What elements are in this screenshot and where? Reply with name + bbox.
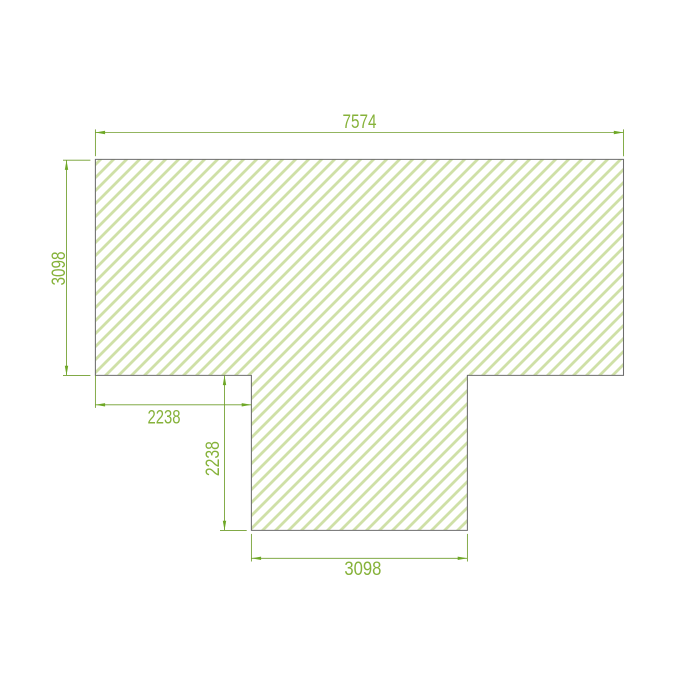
svg-text:2238: 2238: [202, 441, 224, 476]
svg-text:7574: 7574: [343, 111, 377, 133]
svg-text:3098: 3098: [48, 252, 70, 286]
svg-text:3098: 3098: [344, 558, 381, 580]
svg-text:2238: 2238: [148, 407, 181, 429]
